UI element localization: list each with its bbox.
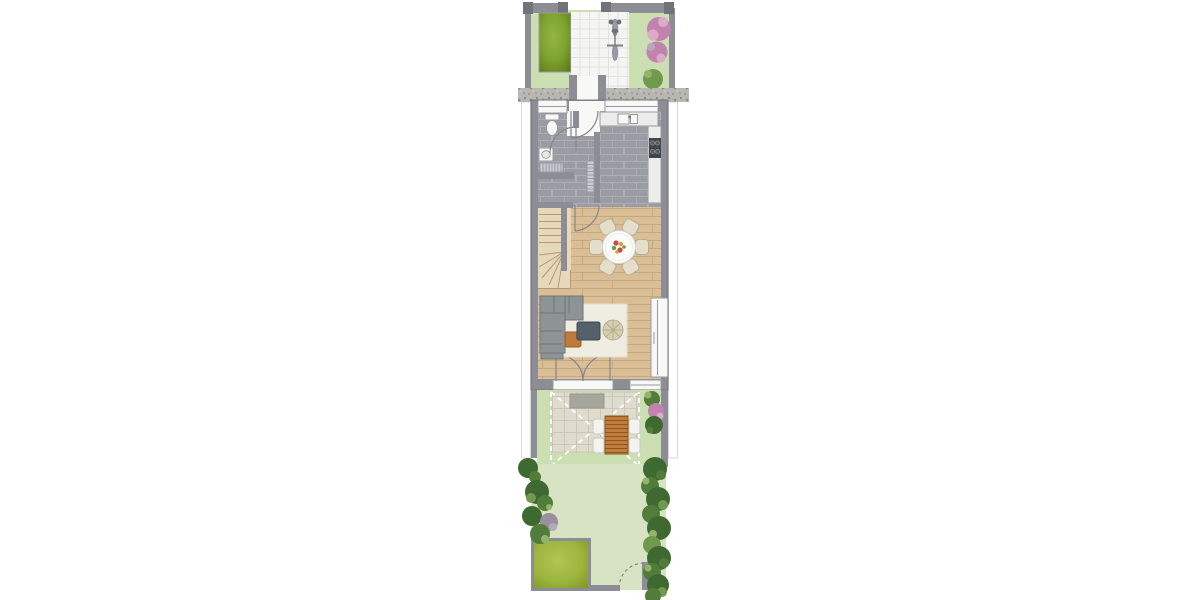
front-garden-wall-right — [669, 8, 675, 92]
pouf — [603, 320, 623, 340]
living-furniture — [540, 296, 627, 359]
kitchen-worktop-side — [648, 126, 661, 203]
right-neighbor-outline — [669, 102, 678, 458]
garden-seat — [593, 438, 604, 453]
stair-wall — [561, 208, 567, 271]
green-lawn-square — [533, 540, 590, 590]
toilet — [547, 121, 558, 136]
front-door-threshold — [569, 101, 605, 111]
back-boundary-wall — [589, 585, 620, 591]
floor-plan-page — [0, 0, 1200, 600]
french-door-threshold — [553, 380, 613, 390]
hall-kitchen-wall — [594, 132, 600, 203]
front-garden — [518, 2, 689, 104]
doormat — [570, 394, 604, 408]
cooktop — [649, 138, 661, 158]
garden-seat — [629, 438, 640, 453]
toilet-cistern — [545, 114, 559, 120]
wall-right-upper — [661, 100, 668, 298]
dining-table — [603, 231, 636, 264]
terrace-wall-left — [531, 390, 537, 458]
stair-top-wall — [531, 202, 573, 208]
wc-radiator — [540, 163, 563, 172]
front-garden-wall-left — [525, 8, 531, 92]
planting-bed — [539, 13, 571, 72]
picnic-table — [605, 416, 628, 454]
left-neighbor-outline — [522, 102, 531, 458]
dining-chair — [636, 240, 649, 255]
building — [531, 100, 668, 390]
back-garden — [518, 457, 671, 600]
street-wall-right — [602, 3, 674, 13]
wall-left — [531, 100, 538, 390]
coffee-table — [577, 322, 600, 340]
wc-wall-bottom — [538, 172, 574, 179]
garden-seat — [593, 419, 604, 434]
kitchen-faucet — [628, 116, 631, 119]
garden-seat — [629, 419, 640, 434]
terrace — [531, 390, 668, 467]
hall-radiator — [587, 161, 594, 192]
staircase — [538, 208, 571, 289]
floor-plan-drawing — [0, 0, 1200, 600]
kitchen-sink — [618, 114, 629, 124]
dining-chair — [590, 240, 603, 255]
